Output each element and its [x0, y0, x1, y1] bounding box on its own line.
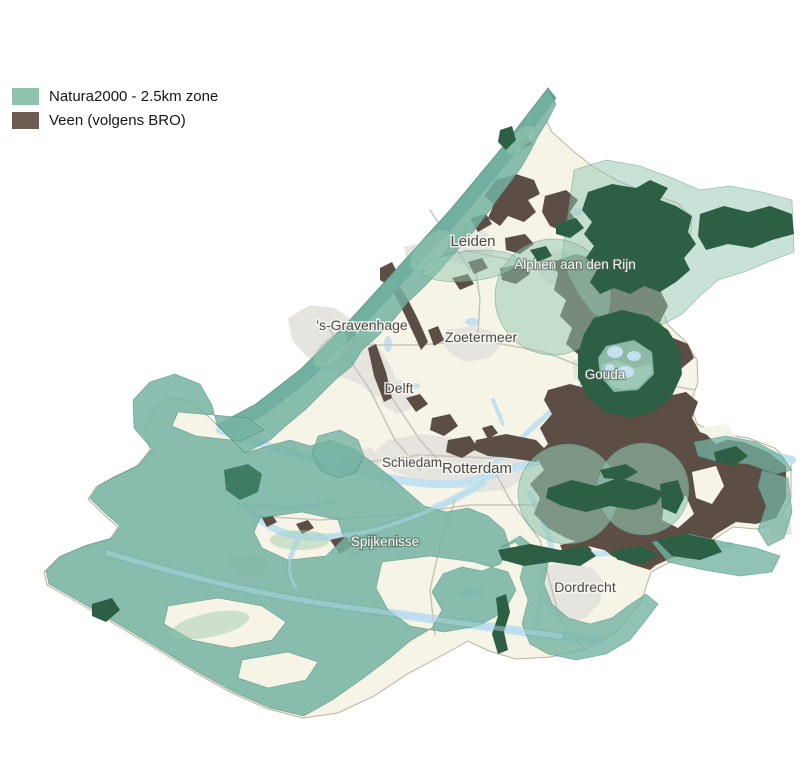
city-label-delft: Delft	[385, 380, 414, 396]
city-label-gravenhage: 's-Gravenhage	[316, 317, 408, 333]
natura2000-swatch-icon	[12, 88, 39, 105]
map-screenshot: Leiden Alphen aan den Rijn 's-Gravenhage…	[0, 0, 802, 779]
city-label-spijkenisse: Spijkenisse	[351, 534, 419, 549]
legend: Natura2000 - 2.5km zone Veen (volgens BR…	[12, 88, 218, 129]
legend-label-veen: Veen (volgens BRO)	[49, 112, 186, 129]
city-label-schiedam: Schiedam	[382, 455, 442, 470]
city-label-leiden: Leiden	[450, 233, 495, 250]
city-label-gouda: Gouda	[585, 367, 626, 382]
veen-swatch-icon	[12, 112, 39, 129]
city-label-rotterdam: Rotterdam	[442, 460, 512, 477]
city-label-dordrecht: Dordrecht	[554, 579, 616, 595]
legend-label-natura2000: Natura2000 - 2.5km zone	[49, 88, 218, 105]
legend-item-veen: Veen (volgens BRO)	[12, 112, 218, 129]
city-label-alphen: Alphen aan den Rijn	[514, 257, 636, 272]
city-label-zoetermeer: Zoetermeer	[445, 329, 518, 345]
legend-item-natura2000: Natura2000 - 2.5km zone	[12, 88, 218, 105]
